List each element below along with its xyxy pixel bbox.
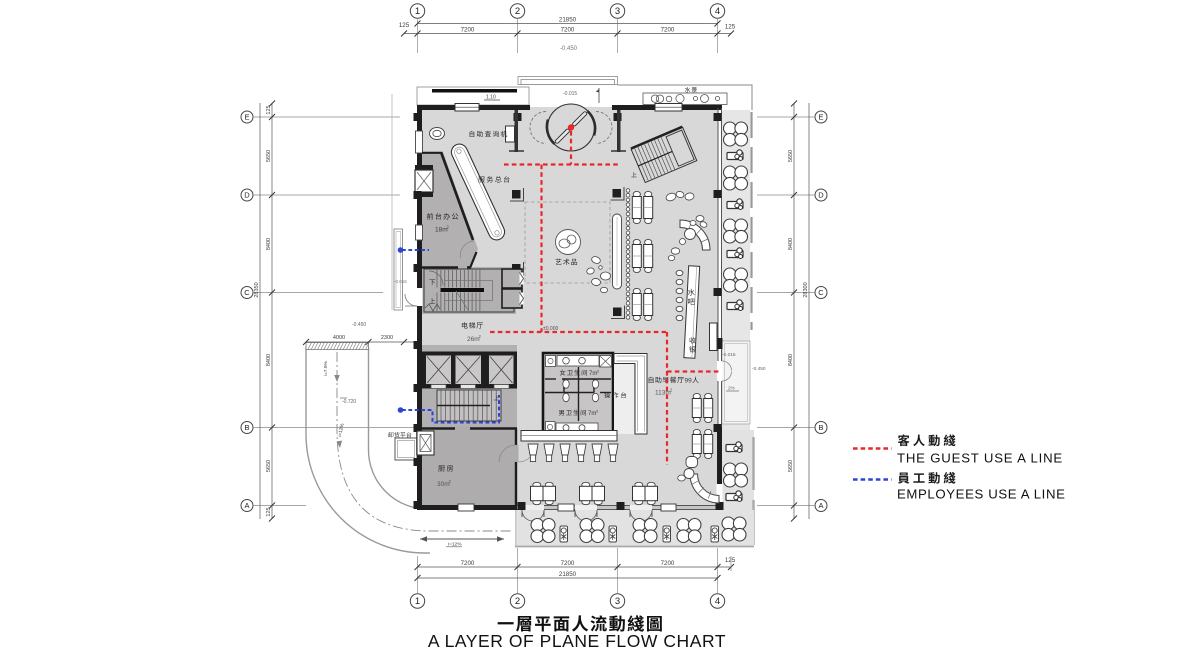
svg-text:5650: 5650 (266, 150, 272, 162)
svg-text:-0.015: -0.015 (563, 91, 577, 97)
svg-text:2%: 2% (728, 386, 736, 392)
svg-text:A: A (818, 501, 823, 510)
svg-text:5650: 5650 (788, 460, 794, 472)
svg-text:4: 4 (715, 596, 720, 607)
svg-text:2300: 2300 (381, 335, 393, 341)
svg-text:3: 3 (615, 6, 620, 17)
svg-text:125: 125 (266, 105, 272, 114)
svg-text:3: 3 (615, 596, 620, 607)
svg-text:1: 1 (415, 6, 420, 17)
svg-text:-0.720: -0.720 (342, 399, 356, 405)
svg-text:7200: 7200 (561, 26, 575, 33)
svg-text:7200: 7200 (461, 560, 475, 567)
svg-text:21850: 21850 (559, 17, 577, 24)
svg-text:8400: 8400 (788, 354, 794, 366)
svg-text:2: 2 (515, 596, 520, 607)
svg-text:-0.450: -0.450 (752, 366, 766, 372)
svg-text:B: B (244, 423, 249, 432)
svg-text:EMPLOYEES USE A LINE: EMPLOYEES USE A LINE (897, 487, 1066, 502)
svg-text:±0.000: ±0.000 (543, 326, 558, 332)
svg-text:21850: 21850 (559, 571, 577, 578)
svg-text:8400: 8400 (266, 354, 272, 366)
svg-text:D: D (818, 191, 824, 200)
svg-text:E: E (244, 113, 249, 122)
svg-text:A: A (244, 501, 249, 510)
svg-text:-0.450: -0.450 (352, 322, 366, 328)
svg-text:7200: 7200 (461, 26, 475, 33)
svg-text:i=7.5%: i=7.5% (323, 360, 329, 376)
svg-text:125: 125 (266, 507, 272, 516)
svg-text:5650: 5650 (788, 150, 794, 162)
svg-text:99: 99 (685, 378, 693, 385)
svg-text:8400: 8400 (266, 238, 272, 250)
svg-text:5650: 5650 (266, 460, 272, 472)
svg-text:125: 125 (725, 24, 736, 31)
svg-text:8400: 8400 (788, 238, 794, 250)
svg-text:B: B (818, 423, 823, 432)
svg-text:THE GUEST USE A LINE: THE GUEST USE A LINE (897, 451, 1063, 466)
svg-text:113m: 113m (655, 390, 671, 397)
svg-text:125: 125 (399, 22, 410, 29)
svg-text:7200: 7200 (561, 560, 575, 567)
svg-text:28300: 28300 (803, 282, 809, 297)
svg-text:E: E (818, 113, 823, 122)
svg-text:-0.450: -0.450 (560, 46, 578, 52)
svg-text:4000: 4000 (333, 335, 345, 341)
svg-text:1: 1 (415, 596, 420, 607)
svg-text:7200: 7200 (661, 26, 675, 33)
svg-text:2: 2 (515, 6, 520, 17)
svg-text:A LAYER OF PLANE FLOW CHART: A LAYER OF PLANE FLOW CHART (428, 631, 726, 650)
svg-text:125: 125 (725, 557, 736, 564)
svg-text:C: C (818, 288, 824, 297)
svg-text:D: D (244, 191, 250, 200)
svg-text:7200: 7200 (661, 560, 675, 567)
svg-text:-0.015: -0.015 (722, 352, 736, 358)
svg-text:28350: 28350 (254, 282, 260, 297)
svg-text:C: C (244, 288, 250, 297)
svg-text:-0.015: -0.015 (394, 279, 407, 284)
svg-text:4: 4 (715, 6, 720, 17)
